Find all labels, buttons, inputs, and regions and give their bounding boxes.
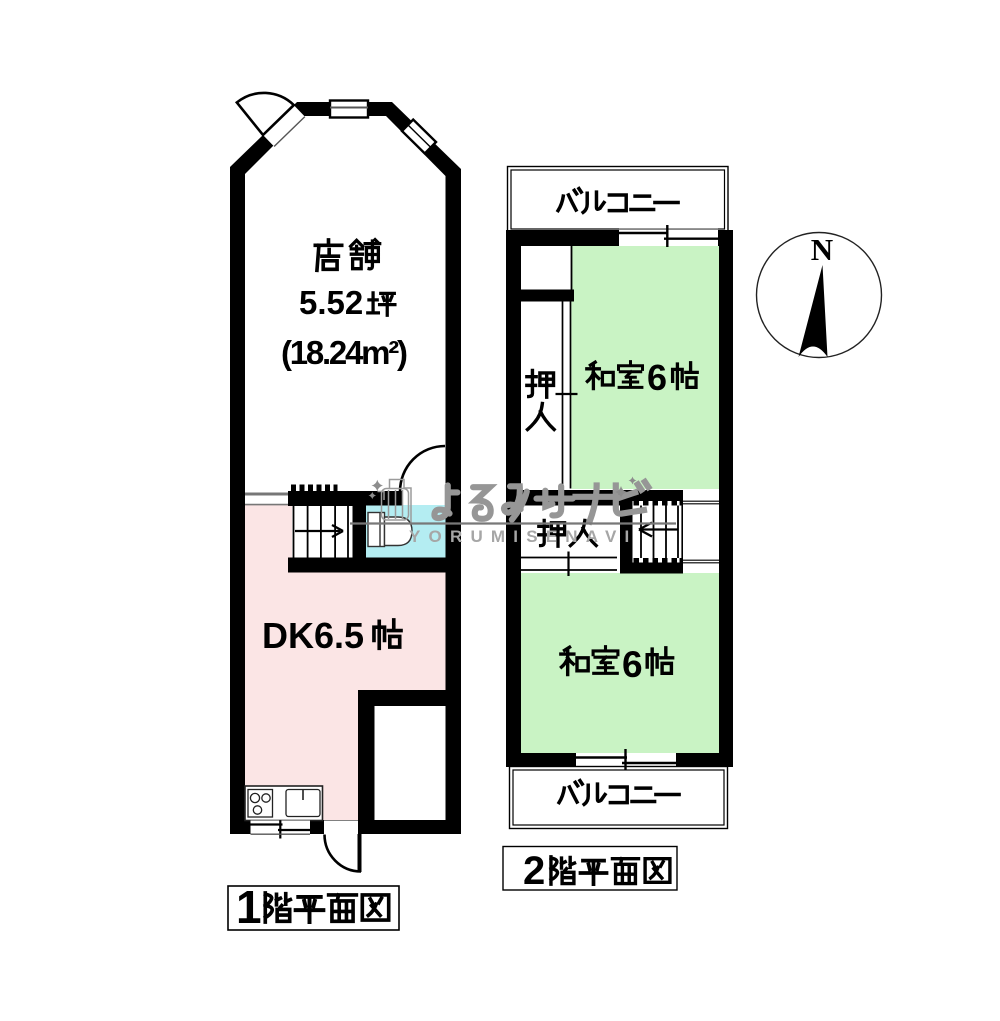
svg-text:N: N (811, 232, 833, 267)
svg-text:1: 1 (236, 881, 262, 933)
svg-text:DK6.5: DK6.5 (262, 615, 364, 656)
svg-text:YORUMISENAVI: YORUMISENAVI (409, 527, 637, 546)
svg-text:6: 6 (622, 644, 643, 685)
svg-text:2: 2 (523, 849, 545, 893)
svg-text:6: 6 (647, 357, 667, 398)
svg-text:5.52: 5.52 (299, 284, 363, 321)
svg-text:(18.24m²): (18.24m²) (281, 334, 408, 371)
